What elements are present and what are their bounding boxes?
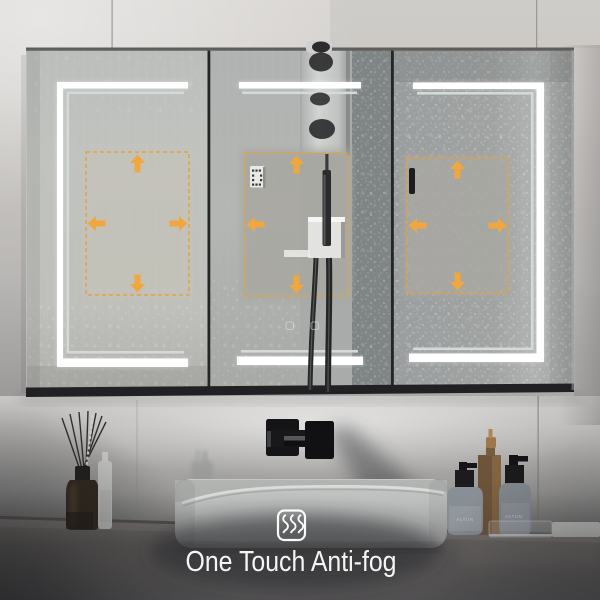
svg-text:One Touch Anti-fog: One Touch Anti-fog xyxy=(186,546,397,578)
